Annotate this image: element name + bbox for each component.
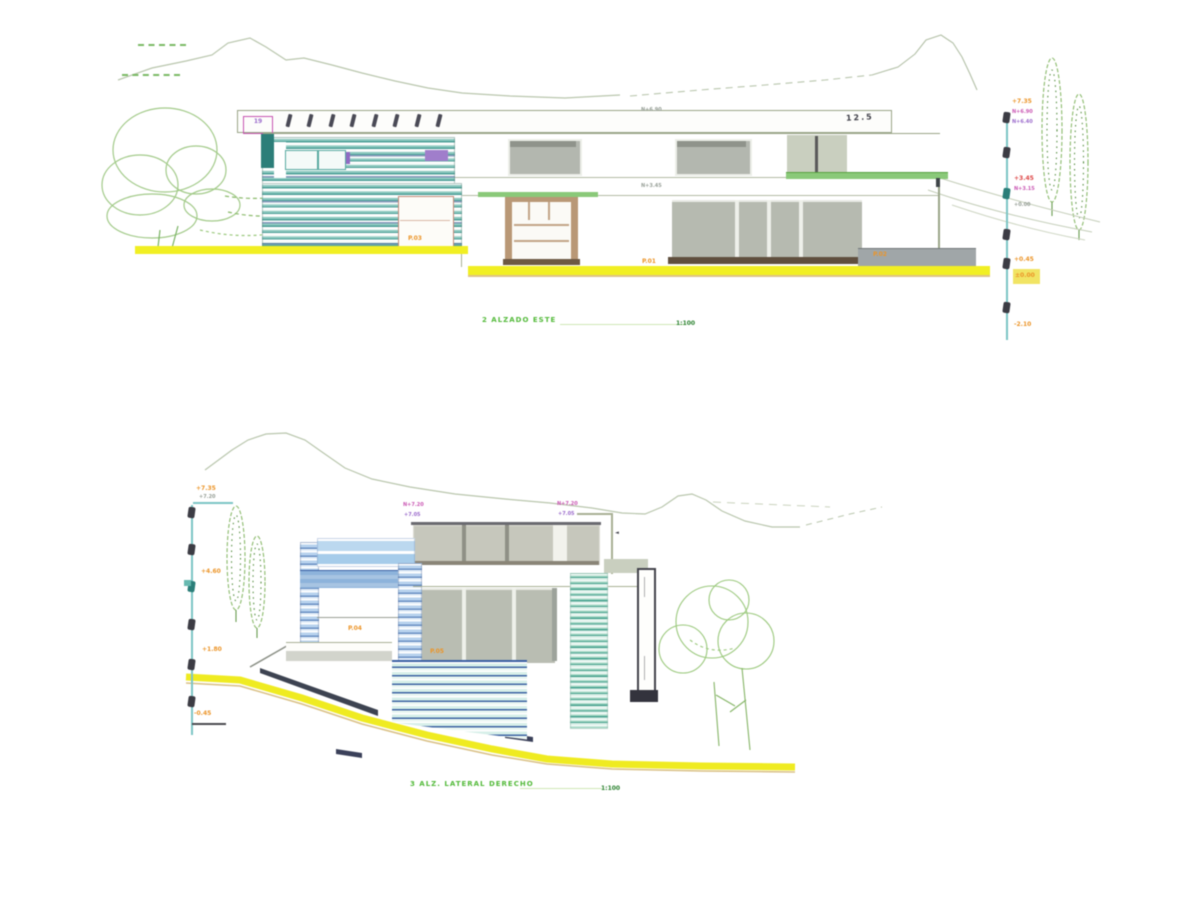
window-1-shadow xyxy=(510,141,576,147)
entry-tag: P.01 xyxy=(642,259,656,265)
level-marker xyxy=(187,507,195,519)
level-label-ground: +0.45 xyxy=(1014,257,1034,263)
terrace-slab-gray xyxy=(286,651,392,661)
glass-right-frame xyxy=(552,588,557,661)
frame-line-horizontal xyxy=(577,513,613,515)
roof-note-left-2: +7.05 xyxy=(404,513,421,518)
level-base-underline xyxy=(192,723,226,725)
stair-louver-screen xyxy=(570,573,608,729)
level-note-2: N+6.40 xyxy=(1012,120,1033,125)
entry-door-top-mullions xyxy=(528,202,530,220)
level-marker xyxy=(1002,302,1010,314)
level-label-mid-note: +0.00 xyxy=(1014,203,1031,208)
right-wing-outline xyxy=(637,568,656,702)
glass-doors-mullion-1 xyxy=(462,588,466,661)
level-label-top: +7.35 xyxy=(196,486,216,492)
purple-patch xyxy=(425,150,448,161)
roof-note-left-1: N+7.20 xyxy=(403,503,424,508)
annotation-scribble-2 xyxy=(122,74,180,76)
level-marker xyxy=(187,619,195,631)
sheet1-title-line xyxy=(560,324,686,325)
window-2-shadow xyxy=(677,141,746,147)
louver-window-2 xyxy=(318,150,346,170)
scanned-drawing: 19 12.5 P.03 xyxy=(0,0,1200,920)
level-label-mid-magenta: N+3.15 xyxy=(1014,187,1035,192)
low-wall-tag: P.02 xyxy=(873,252,887,258)
mid-floor-line xyxy=(413,586,648,587)
facade-top-line xyxy=(263,133,940,134)
garage-door-tag: P.03 xyxy=(408,236,422,242)
terrace-railing-line xyxy=(317,617,398,618)
level-label-ground-highlight: ±0.00 xyxy=(1015,273,1035,279)
parapet-right-tag: 12.5 xyxy=(846,113,874,122)
glass-mullion-2 xyxy=(767,200,771,258)
wall-note-lower: N+3.45 xyxy=(641,184,662,189)
level-label-basement: -2.10 xyxy=(1014,322,1031,328)
drawing-canvas: 19 12.5 P.03 xyxy=(0,0,1200,920)
sheet1-title: 2 ALZADO ESTE xyxy=(482,317,556,324)
wall-note-upper: N+6.90 xyxy=(641,108,662,113)
glass-mullion-3 xyxy=(799,200,803,258)
annotation-scribble-1 xyxy=(138,44,186,46)
level-top-underline xyxy=(193,502,233,504)
level-marker xyxy=(187,659,195,671)
entry-door-rail-1 xyxy=(514,224,569,226)
entry-door-rail-2 xyxy=(514,240,569,242)
panel-right-joint xyxy=(815,136,818,172)
parapet-box-tag: 19 xyxy=(243,116,273,134)
eave-green-line xyxy=(786,172,948,179)
garage-door-panel xyxy=(398,196,454,249)
level-marker xyxy=(1002,188,1010,200)
upper-band-gap xyxy=(553,525,567,563)
louver-window-1 xyxy=(285,150,318,170)
sheet2-scale-tag: 1:100 xyxy=(601,786,620,792)
glass-tag: P.05 xyxy=(430,649,444,655)
wing-dark-base xyxy=(630,690,658,702)
sheet2-elevation: N+7.20 +7.05 N+7.20 +7.05 ◄ P.04 04 P.05 xyxy=(0,400,1200,920)
entry-door-top-mullions-2 xyxy=(548,202,550,220)
louver-fence xyxy=(392,660,527,742)
level-teal-tick xyxy=(184,580,191,586)
garage-door-line xyxy=(400,220,450,221)
level-marker xyxy=(1002,258,1010,270)
ground-yellow-right xyxy=(468,266,990,275)
purple-tick xyxy=(346,152,350,164)
level-note-1: N+6.90 xyxy=(1012,110,1033,115)
parapet-band xyxy=(237,110,892,133)
ground-yellow-left xyxy=(135,246,468,254)
glass-mullion-1 xyxy=(735,200,739,258)
sheet1-scale-tag: 1:100 xyxy=(676,321,695,327)
level-label-mid: +1.80 xyxy=(202,647,222,653)
wing-inner-dash-1 xyxy=(644,577,645,597)
glass-sill-dark xyxy=(668,257,866,264)
ground-tan-line xyxy=(468,275,990,277)
wing-inner-dash-2 xyxy=(644,656,645,680)
upper-band-mullion-2 xyxy=(505,525,509,563)
level-label-upper: +4.60 xyxy=(201,569,221,575)
louver-dark-corner xyxy=(261,134,274,168)
dimension-arrow: ◄ xyxy=(615,531,619,536)
level-marker xyxy=(1002,147,1010,159)
upper-band-bottom-dark xyxy=(413,561,599,565)
sheet1-elevation: 19 12.5 P.03 xyxy=(0,0,1200,400)
entry-door xyxy=(505,197,578,265)
entry-door-sill xyxy=(503,259,580,265)
level-label-top: +7.35 xyxy=(1012,99,1032,105)
terrace-tag-1: P.04 xyxy=(348,626,362,632)
roof-note-right-1: N+7.20 xyxy=(557,502,578,507)
sheet2-title: 3 ALZ. LATERAL DERECHO xyxy=(410,781,534,788)
roof-note-right-2: +7.05 xyxy=(558,512,575,517)
eave-end-tick xyxy=(936,178,940,187)
band-b xyxy=(300,570,412,588)
level-marker xyxy=(1002,229,1010,241)
level-label-base: -0.45 xyxy=(194,711,211,717)
sheet2-title-line xyxy=(520,788,602,789)
level-label-mid-red: +3.45 xyxy=(1014,176,1034,182)
level-marker xyxy=(1002,112,1010,124)
glass-doors-mullion-2 xyxy=(512,588,516,661)
level-label-top-note: +7.20 xyxy=(199,495,216,500)
level-marker xyxy=(187,544,195,556)
upper-band-mullion-1 xyxy=(462,525,466,563)
level-marker xyxy=(187,696,195,708)
